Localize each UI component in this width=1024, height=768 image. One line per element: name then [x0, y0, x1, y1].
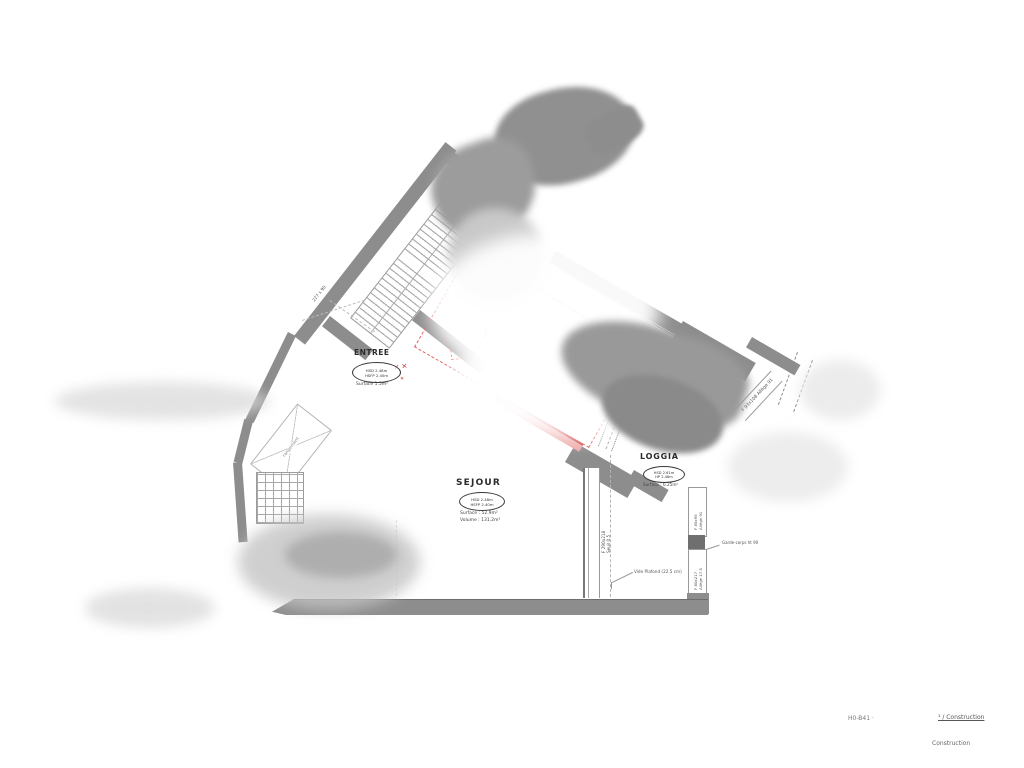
- room-label-entree: ENTREE: [354, 348, 390, 357]
- white-smudge-3: [450, 340, 570, 420]
- stamp-loggia-hsfp: HP 2.48m: [655, 475, 673, 479]
- smudge-right-loggia: [728, 432, 848, 502]
- dashed-line-loggia: [610, 455, 611, 597]
- closet-label: rangement: [281, 436, 301, 459]
- garde-corps-leader: [706, 545, 720, 550]
- smudge-bottom-left-dark: [285, 532, 397, 578]
- room-label-loggia: LOGGIA: [640, 452, 679, 461]
- garde-corps-label: Garde-corps ht 90: [722, 541, 758, 546]
- smudge-right-far: [800, 360, 880, 420]
- stamp-sejour-hsfp: HSFP 2.40m: [470, 502, 493, 507]
- footer-ref: H0-B41 ·: [848, 715, 874, 722]
- floor-plan-canvas: F 93x108 Allège 91 F 250x218 Seuil 0.5 F…: [0, 0, 1024, 768]
- window-loggia-right-top-label: F 85x95 Allège 91: [694, 512, 703, 530]
- red-mark-small: ✕: [400, 376, 404, 382]
- smudge-left-streak: [55, 382, 270, 420]
- window-loggia-right-bottom-label: F 80x217 Allège 17.5: [694, 568, 703, 590]
- window-sejour-vertical: [583, 468, 600, 598]
- sejour-volume: Volume : 131.2m³: [460, 518, 500, 523]
- stamp-entree-hsfp: HSFP 2.40m: [365, 373, 388, 378]
- wall-left-2: [234, 419, 253, 464]
- stamp-loggia: HSD 2.61m HP 2.48m: [643, 466, 685, 483]
- entree-surface: Surface 1.5m²: [356, 382, 388, 387]
- dim-text: Allège 91: [699, 512, 704, 530]
- vide-plafond-leader: [612, 572, 633, 583]
- footer-construction-link: ¹ / Construction: [938, 714, 984, 721]
- loggia-surface: Surface : 6.25m²: [643, 482, 678, 487]
- wall-loggia-top: [565, 443, 638, 498]
- stamp-sejour: HSD 2.48m HSFP 2.40m: [459, 492, 505, 511]
- smudge-bottom-wall-tip: [85, 588, 215, 628]
- wall-left-3: [233, 462, 248, 542]
- window-sejour-vertical-innerline: [588, 468, 589, 598]
- vide-plafond-tick: [611, 582, 612, 589]
- dim-text: Allège 17.5: [699, 568, 704, 590]
- footer-construction-line2: Construction: [932, 740, 970, 747]
- vide-plafond-label: Vide Plafond (22.5 cm): [634, 569, 682, 574]
- room-label-sejour: SEJOUR: [456, 478, 501, 488]
- stamp-entree: HSD 2.48m HSFP 2.40m: [352, 362, 401, 383]
- wall-zigzag-ext: [746, 337, 800, 375]
- garde-corps-block: [688, 535, 705, 549]
- sejour-surface: Surface : 52.9m²: [460, 511, 498, 516]
